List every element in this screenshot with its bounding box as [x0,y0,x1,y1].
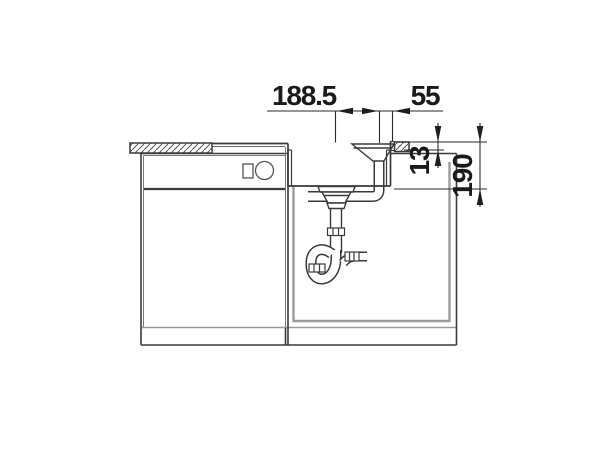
arrow-up-13-bottom [435,150,442,166]
dim-label-55: 55 [398,82,452,110]
arrow-down-13-top [435,126,442,142]
tailpipe-nut [328,228,345,236]
cabinet-door-panel [144,147,286,327]
dim-label-13: 13 [406,141,434,181]
dim-label-188-5: 188.5 [258,82,350,110]
sink-installation-drawing: 188.5 55 13 190 [0,0,615,475]
trap-outlet-nut [345,252,359,261]
arrow-down-190-top [477,126,484,142]
front-slot-detail [243,164,253,178]
trap-left-nut [309,264,325,272]
front-knob-detail [256,162,274,180]
drain-remote-knob [243,162,274,180]
dim-label-190: 190 [449,148,477,204]
arrow-right-at-overflow [362,108,378,115]
drawing-canvas [0,0,615,475]
worktop-section-left [130,143,212,153]
